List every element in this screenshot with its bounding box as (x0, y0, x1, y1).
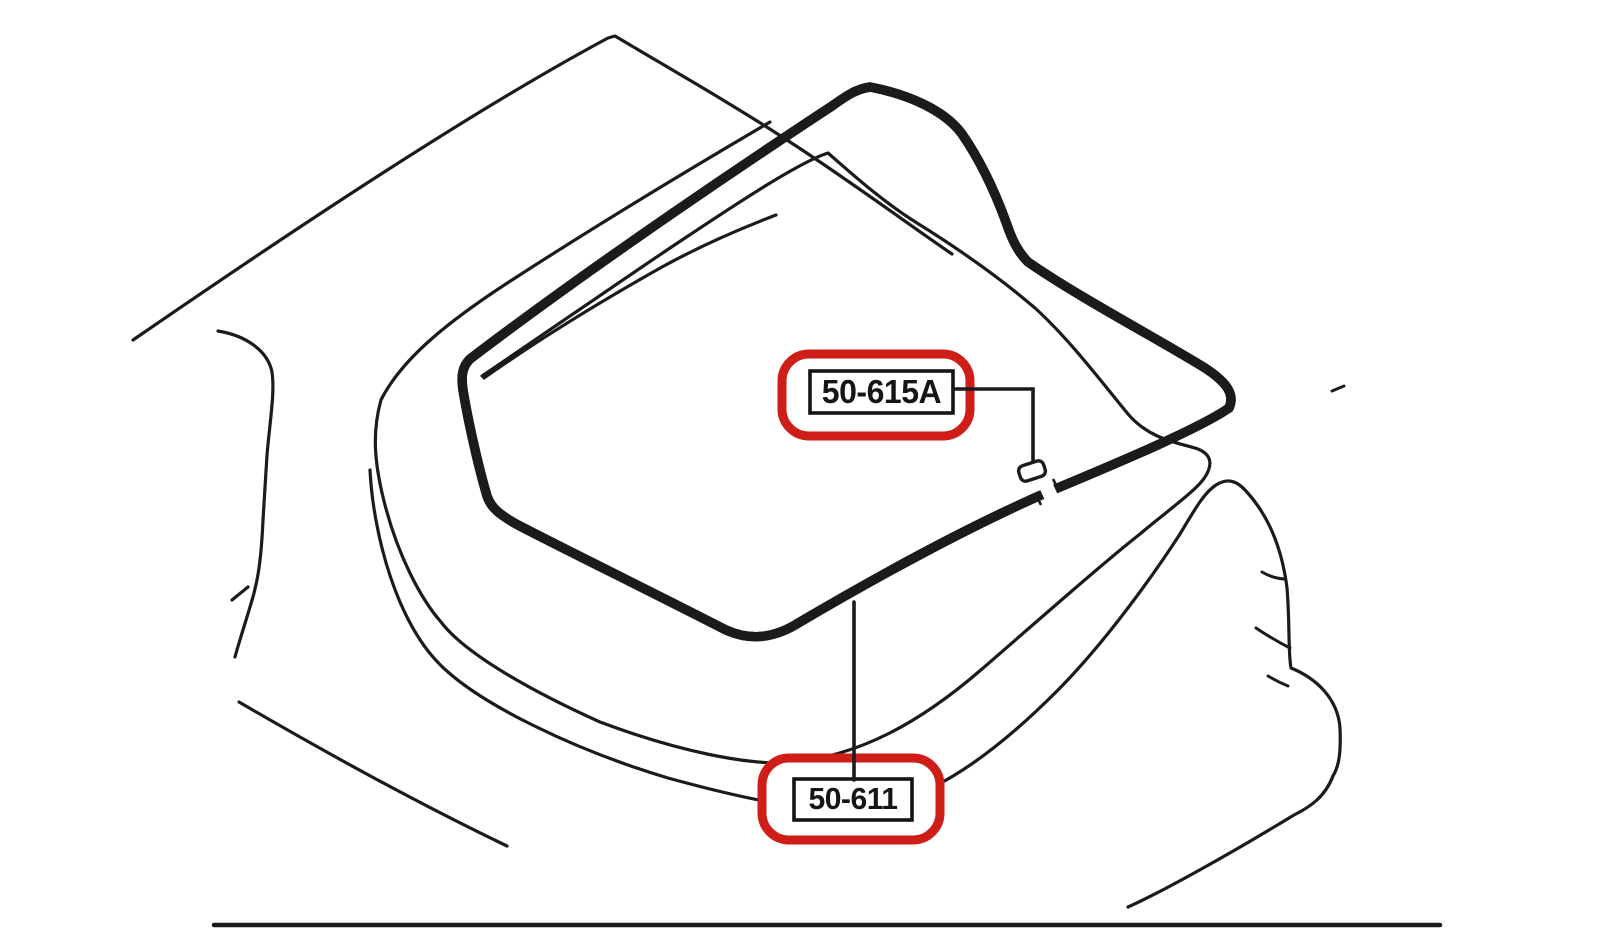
roof-pillar-line (133, 36, 952, 340)
panel-tick (232, 587, 248, 600)
wheel-arch-tick (1262, 572, 1284, 579)
parts-diagram-page: 50-615A 50-611 (0, 0, 1600, 932)
wheel-arch-tick (1256, 628, 1290, 648)
quarter-panel-line (218, 331, 273, 657)
rocker-crease-line (239, 702, 507, 846)
wheel-arch-tick (1268, 676, 1288, 686)
opening-flange-line (375, 122, 1210, 763)
small-dash (1332, 386, 1344, 391)
callout-label-50-615A[interactable]: 50-615A (812, 372, 951, 412)
callout-label-50-611[interactable]: 50-611 (796, 780, 910, 818)
